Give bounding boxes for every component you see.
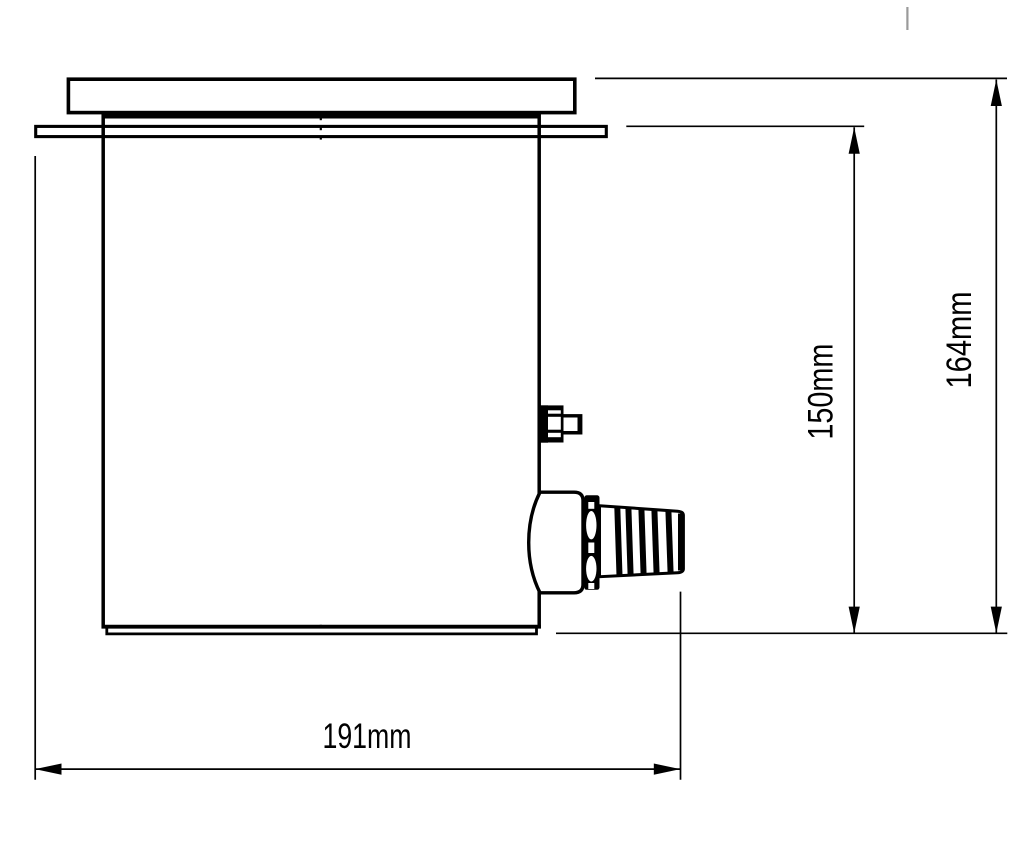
svg-text:164mm: 164mm <box>940 292 979 389</box>
svg-text:191mm: 191mm <box>323 717 412 756</box>
svg-text:150mm: 150mm <box>801 344 840 440</box>
